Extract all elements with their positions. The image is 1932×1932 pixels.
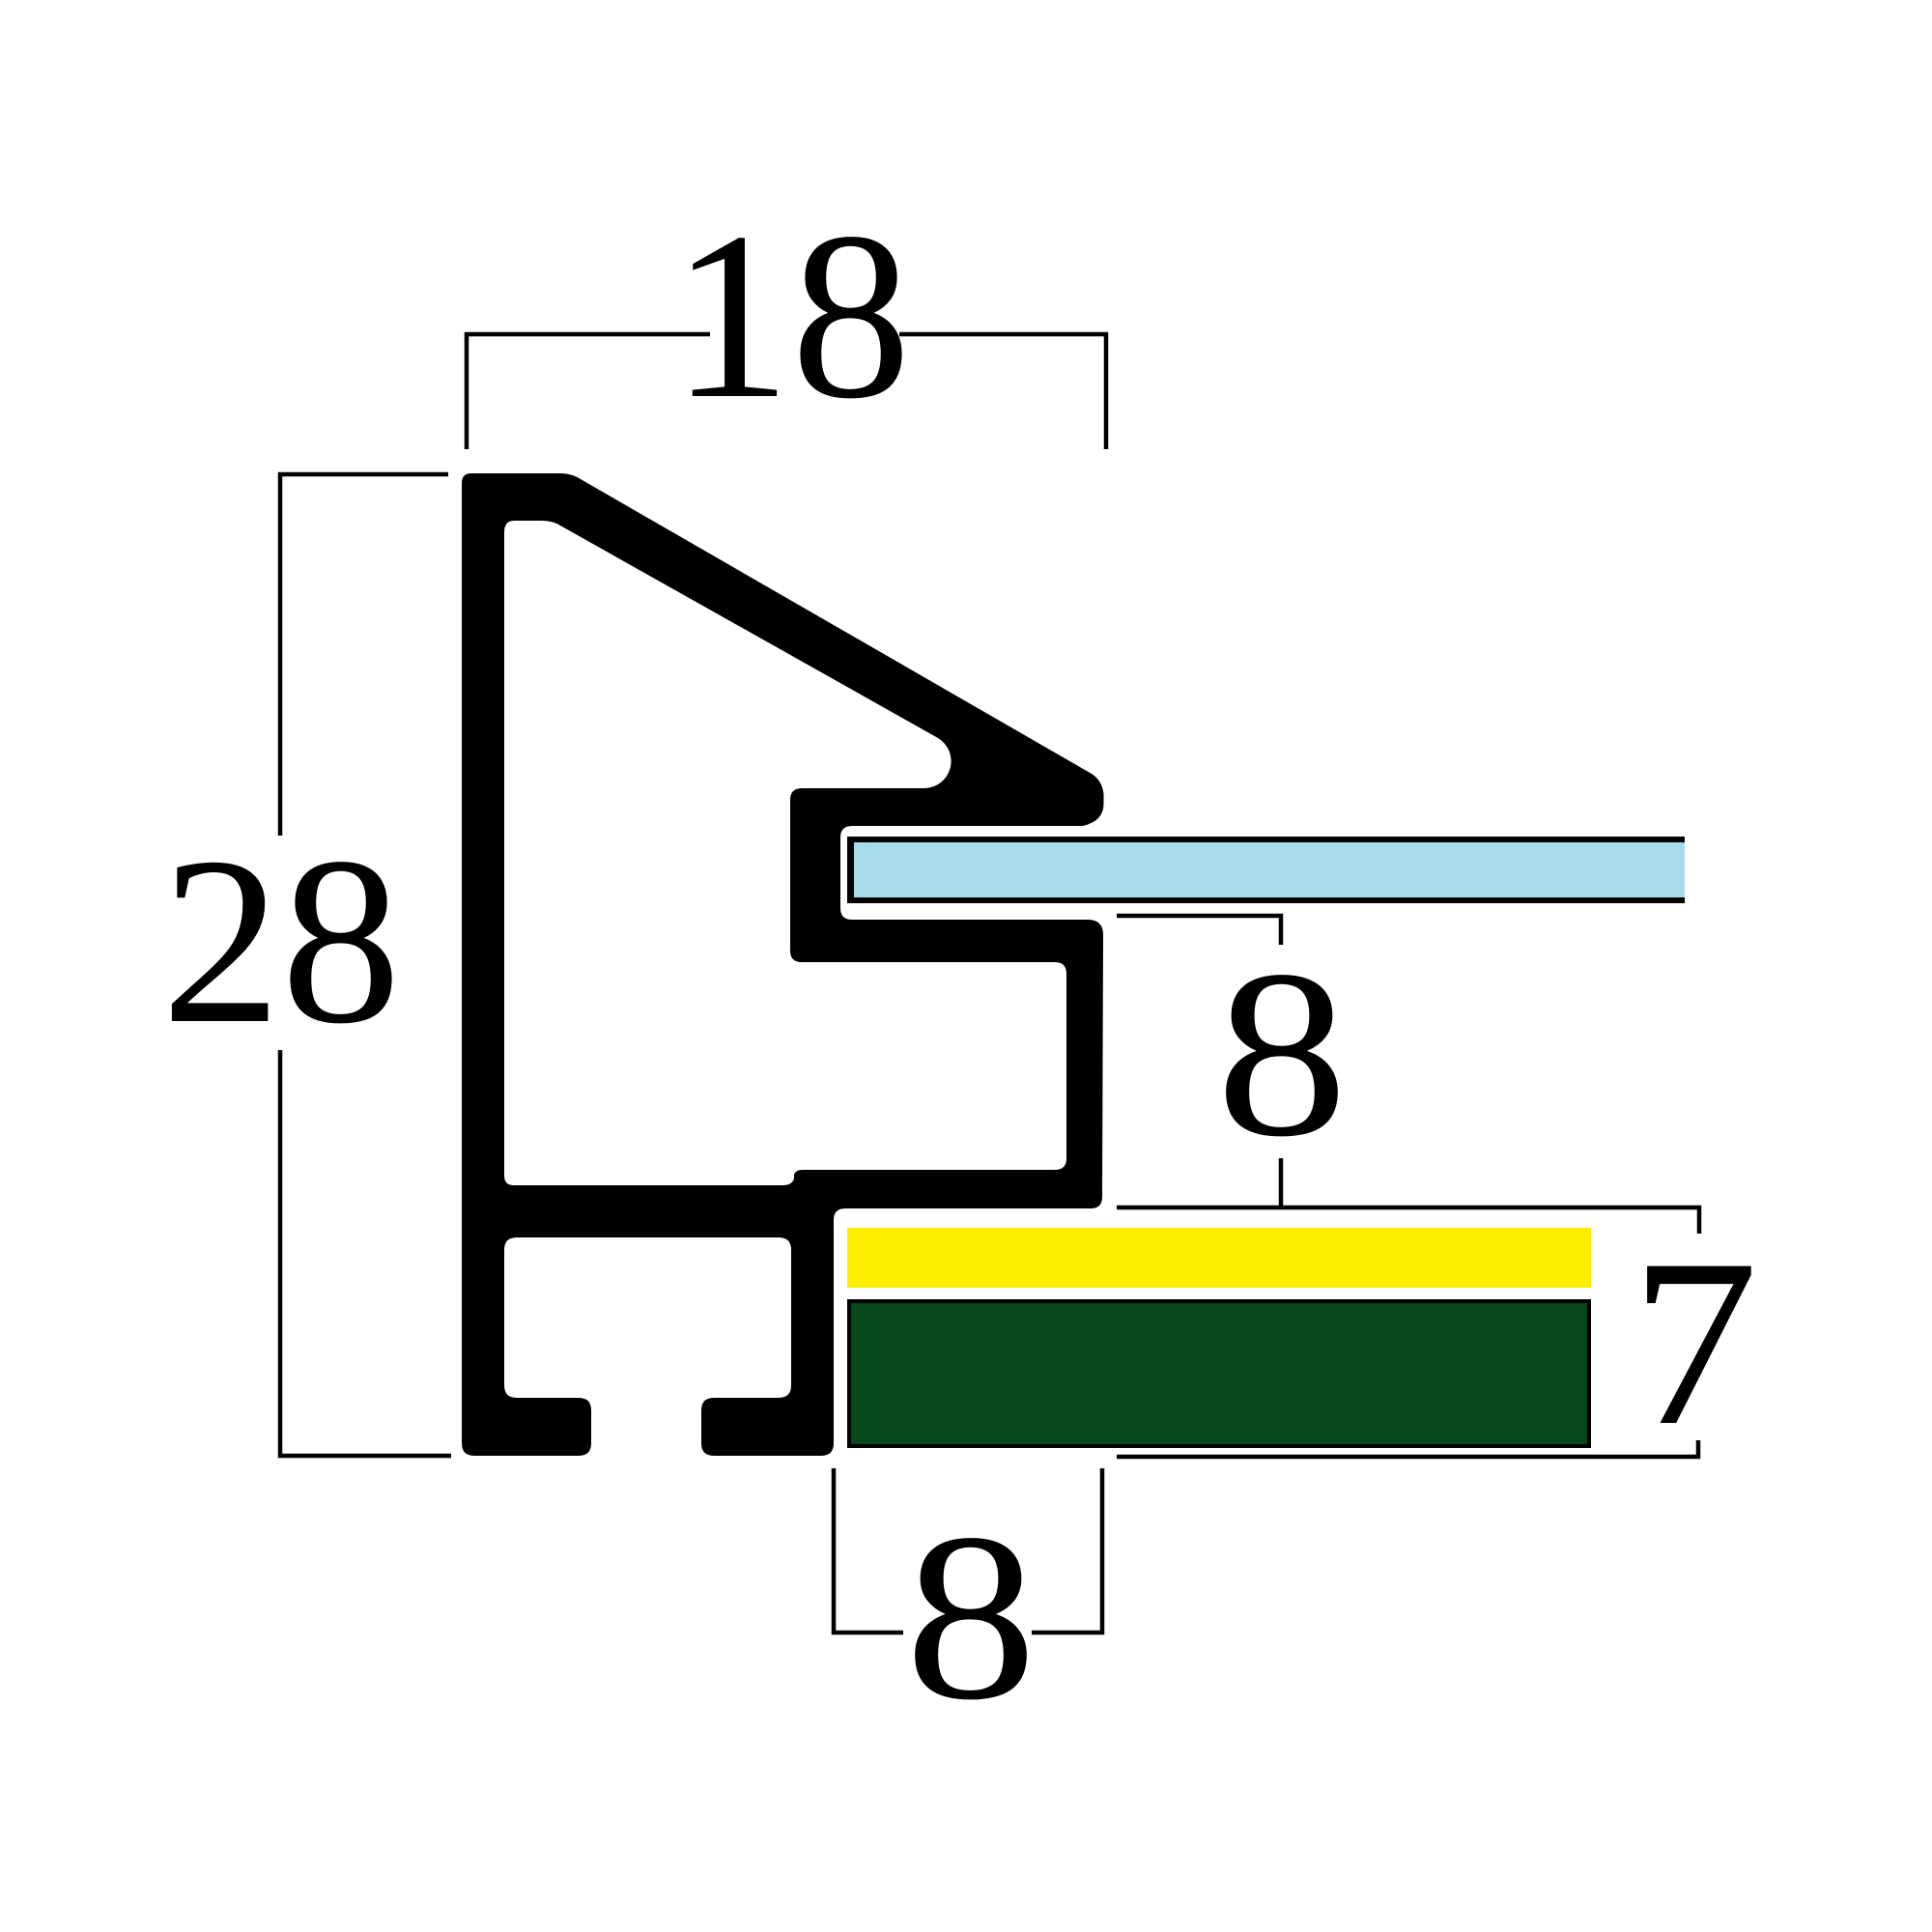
svg-text:7: 7 [1631, 1209, 1759, 1475]
svg-text:8: 8 [905, 1485, 1037, 1749]
svg-text:28: 28 [161, 808, 401, 1073]
svg-text:8: 8 [1216, 922, 1348, 1186]
svg-text:18: 18 [671, 183, 911, 448]
